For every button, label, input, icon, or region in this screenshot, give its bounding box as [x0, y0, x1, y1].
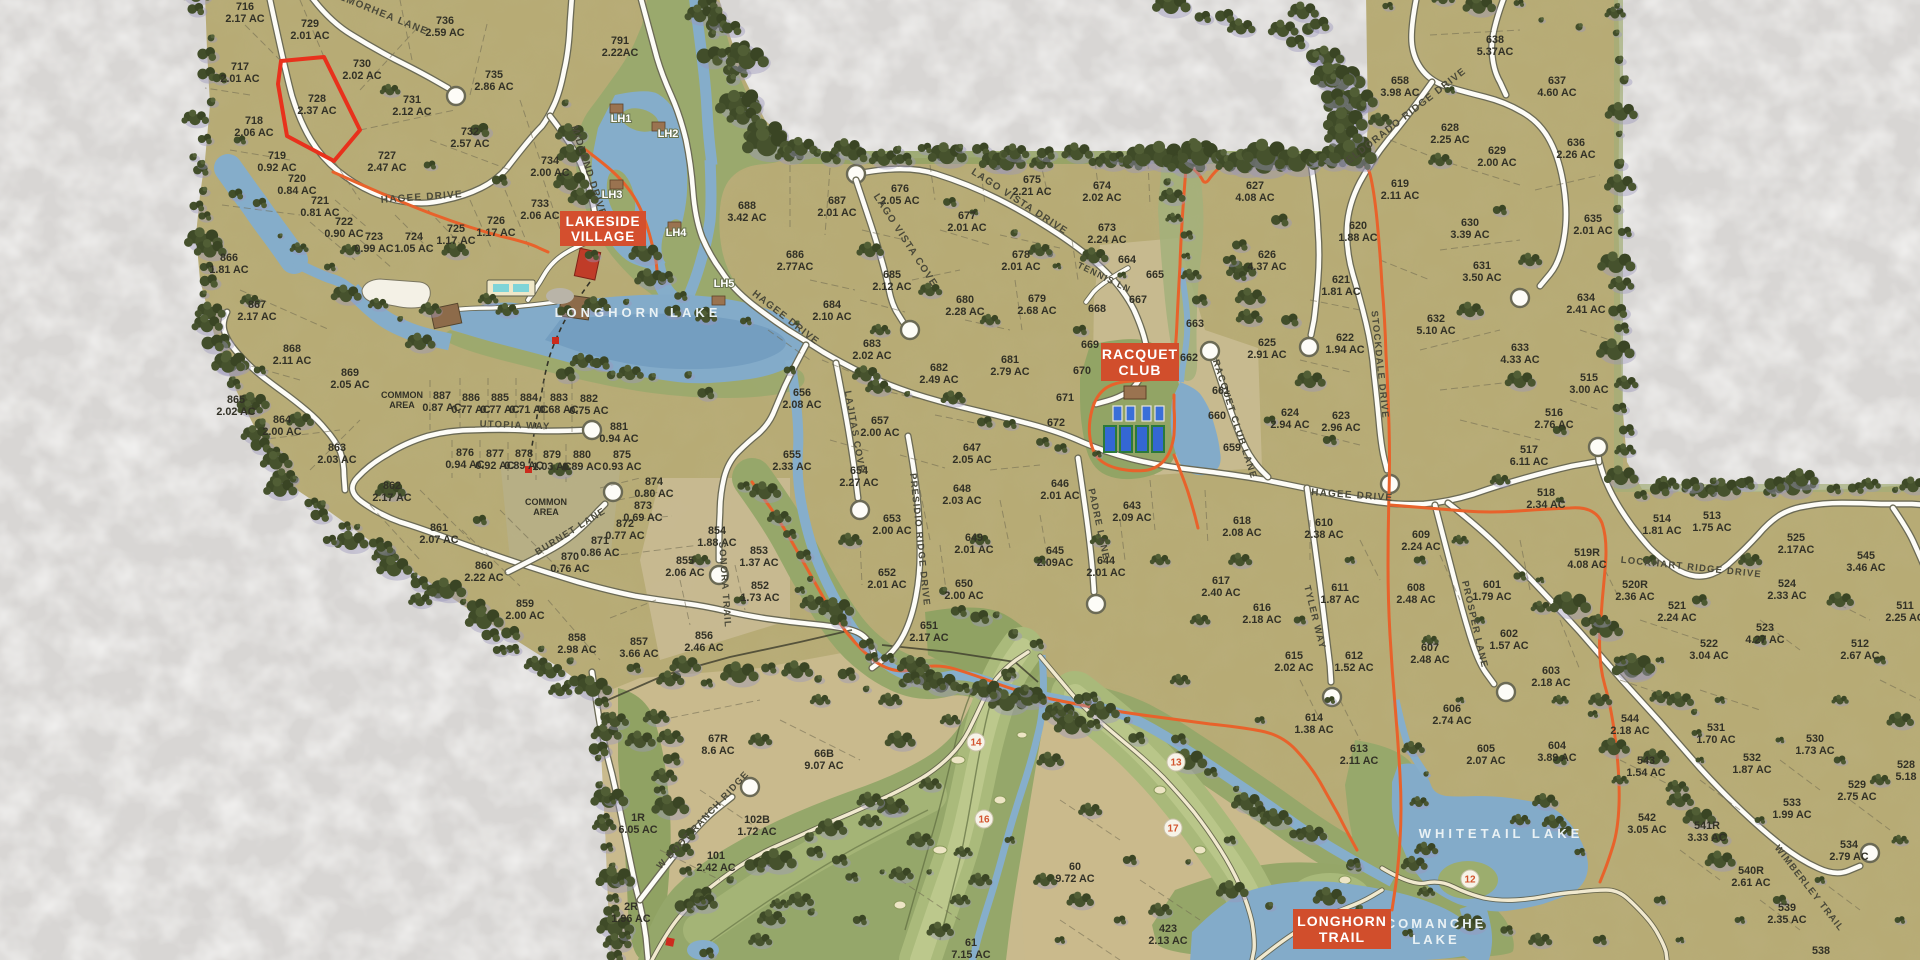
svg-text:LAKESIDEVILLAGE: LAKESIDEVILLAGE [566, 214, 641, 244]
svg-text:665: 665 [1146, 269, 1164, 281]
svg-text:12: 12 [1464, 875, 1476, 886]
svg-text:LH5: LH5 [714, 278, 735, 290]
svg-text:LH1: LH1 [611, 113, 632, 125]
svg-text:663: 663 [1186, 318, 1204, 330]
svg-text:670: 670 [1073, 365, 1091, 377]
svg-text:WHITETAIL LAKE: WHITETAIL LAKE [1419, 826, 1584, 841]
svg-text:13: 13 [1170, 758, 1182, 769]
svg-text:672: 672 [1047, 417, 1065, 429]
svg-text:667: 667 [1129, 294, 1147, 306]
svg-text:538: 538 [1812, 945, 1830, 957]
svg-text:664: 664 [1118, 254, 1136, 266]
svg-text:14: 14 [970, 738, 982, 749]
svg-text:LONGHORN LAKE: LONGHORN LAKE [555, 305, 722, 320]
svg-text:660: 660 [1208, 410, 1226, 422]
svg-text:LH2: LH2 [658, 128, 679, 140]
svg-text:671: 671 [1056, 392, 1074, 404]
svg-text:LH4: LH4 [666, 227, 688, 239]
svg-text:16: 16 [978, 815, 990, 826]
svg-text:LH3: LH3 [602, 189, 623, 201]
svg-text:662: 662 [1180, 352, 1198, 364]
svg-text:5285.18: 5285.18 [1895, 759, 1916, 783]
svg-text:669: 669 [1081, 339, 1099, 351]
svg-text:17: 17 [1167, 824, 1179, 835]
svg-text:668: 668 [1088, 303, 1106, 315]
